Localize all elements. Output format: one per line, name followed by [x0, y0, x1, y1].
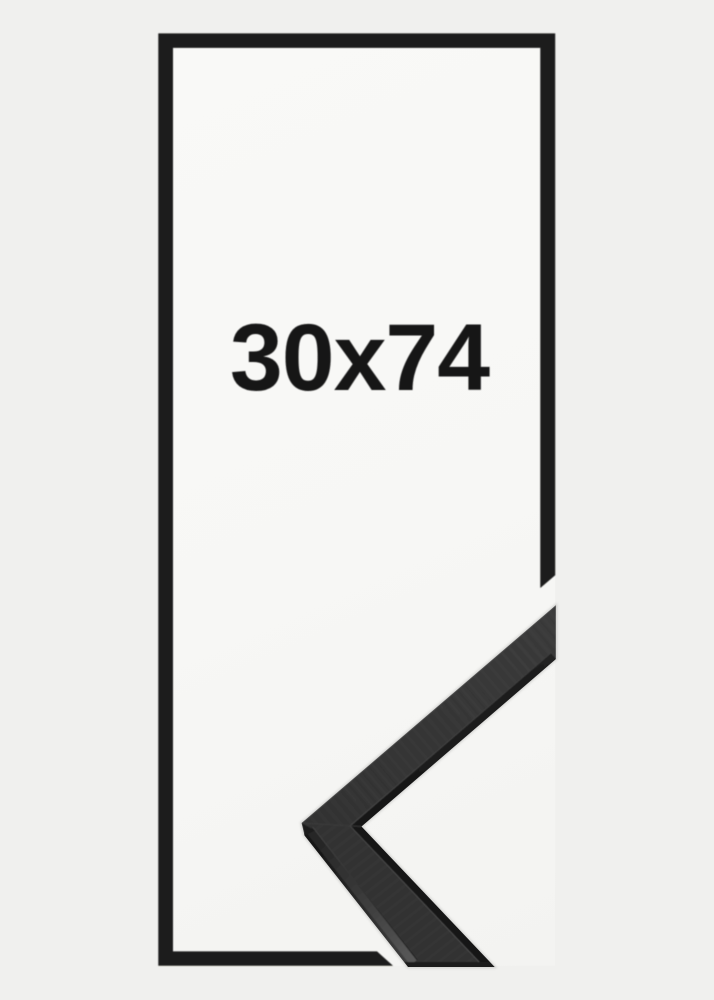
- svg-text:30x74: 30x74: [230, 305, 490, 411]
